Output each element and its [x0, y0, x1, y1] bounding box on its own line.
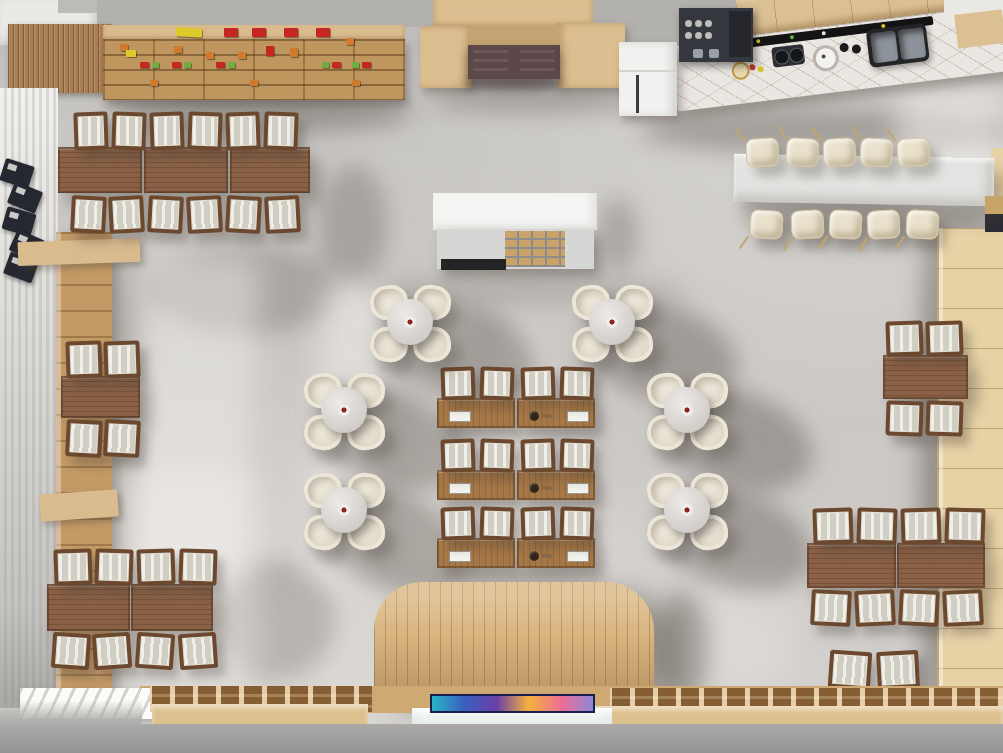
shelf-product	[352, 62, 359, 68]
table-card	[449, 411, 471, 422]
dining-chair	[147, 195, 184, 234]
shelf-product	[174, 46, 182, 53]
dining-chair	[136, 548, 175, 585]
shelf-product	[172, 62, 181, 68]
table-card	[449, 551, 471, 562]
table-card	[567, 551, 589, 562]
bar-stool	[790, 209, 824, 240]
dining-chair	[856, 507, 897, 544]
dining-chair	[70, 195, 107, 234]
communal-table-leg	[985, 196, 1003, 214]
dining-chair	[73, 111, 108, 150]
dining-chair	[65, 340, 102, 378]
dining-table	[807, 543, 896, 588]
dining-chair	[53, 548, 92, 585]
table-bowl	[529, 411, 539, 421]
dining-chair	[51, 632, 91, 671]
shelf-product	[176, 27, 202, 37]
dining-chair	[225, 195, 262, 234]
dining-chair	[135, 632, 175, 671]
dining-chair	[925, 400, 963, 436]
dining-table	[897, 543, 985, 588]
dining-table	[883, 355, 968, 399]
round-marble-table	[321, 387, 367, 433]
dining-chair	[559, 438, 594, 472]
bar-stool	[785, 137, 819, 168]
bar-stool	[745, 137, 779, 168]
dining-chair	[885, 320, 923, 356]
media-screen	[430, 694, 595, 713]
shelf-product	[266, 46, 274, 56]
dining-chair	[440, 506, 475, 540]
bar-stool	[896, 137, 930, 168]
dining-chair	[186, 195, 223, 234]
dining-chair	[559, 506, 594, 540]
dining-chair	[854, 589, 896, 627]
dining-chair	[520, 438, 555, 472]
round-marble-table	[321, 487, 367, 533]
shelf-product	[184, 62, 191, 68]
dining-chair	[103, 340, 140, 378]
dining-table	[131, 584, 213, 631]
dining-table	[230, 147, 310, 193]
dining-chair	[925, 320, 963, 356]
table-card	[567, 411, 589, 422]
shelf-product	[150, 80, 158, 86]
bar-stool	[859, 137, 893, 168]
dining-chair	[876, 650, 920, 690]
shelf-product	[250, 80, 258, 86]
shelf-product	[140, 62, 149, 68]
dining-chair	[810, 589, 852, 627]
bar-stool	[749, 209, 783, 240]
shelf-product	[322, 62, 329, 68]
dining-table	[144, 147, 228, 193]
shelf-product	[284, 28, 298, 37]
dining-chair	[263, 111, 298, 150]
bar-stool	[905, 209, 939, 240]
dining-chair	[187, 111, 222, 150]
shelf-product	[152, 62, 159, 68]
dining-chair	[178, 632, 218, 671]
dining-chair	[94, 548, 133, 585]
shelf-product	[126, 50, 136, 57]
dining-chair	[178, 548, 217, 585]
shelf-product	[216, 62, 225, 68]
table-bowl	[529, 551, 539, 561]
dining-chair	[111, 111, 146, 150]
shelf-product	[316, 28, 330, 37]
shelf-product	[346, 38, 354, 45]
dining-chair	[944, 507, 985, 544]
table-card	[567, 483, 589, 494]
bar-stool	[822, 137, 856, 168]
bar-stool	[828, 209, 862, 240]
dining-chair	[898, 589, 940, 627]
dining-chair	[942, 589, 984, 627]
shelf-product	[290, 48, 298, 57]
dining-chair	[520, 366, 555, 400]
dining-chair	[828, 650, 873, 691]
dining-chair	[264, 195, 301, 234]
shelf-product	[252, 28, 266, 37]
dining-table	[47, 584, 130, 631]
dining-chair	[479, 366, 514, 400]
dining-chair	[479, 506, 514, 540]
dining-chair	[900, 507, 941, 544]
bar-stool	[866, 209, 900, 240]
shelf-product	[238, 52, 246, 59]
dining-chair	[92, 632, 132, 671]
dining-chair	[440, 438, 475, 472]
table-card	[449, 483, 471, 494]
dining-chair	[479, 438, 514, 472]
round-marble-table	[589, 299, 635, 345]
dining-chair	[103, 419, 141, 458]
shelf-product	[362, 62, 371, 68]
stage-platform	[374, 582, 654, 700]
dining-table	[58, 147, 142, 193]
dining-chair	[559, 366, 594, 400]
outside-area	[0, 724, 1003, 753]
dining-chair	[65, 419, 103, 458]
dining-chair	[520, 506, 555, 540]
dining-chair	[885, 400, 923, 436]
shelf-product	[206, 52, 214, 59]
dining-chair	[149, 111, 184, 150]
shelf-product	[352, 80, 360, 86]
shelf-product	[228, 62, 235, 68]
dining-chair	[812, 507, 853, 544]
round-marble-table	[664, 487, 710, 533]
dining-chair	[108, 195, 145, 234]
cafe-floorplan-render	[0, 0, 1003, 753]
round-marble-table	[387, 299, 433, 345]
table-bowl	[529, 483, 539, 493]
shelf-product	[224, 28, 238, 37]
dining-chair	[225, 111, 260, 150]
dining-table	[61, 376, 140, 418]
shelf-product	[332, 62, 341, 68]
dining-chair	[440, 366, 475, 400]
round-marble-table	[664, 387, 710, 433]
